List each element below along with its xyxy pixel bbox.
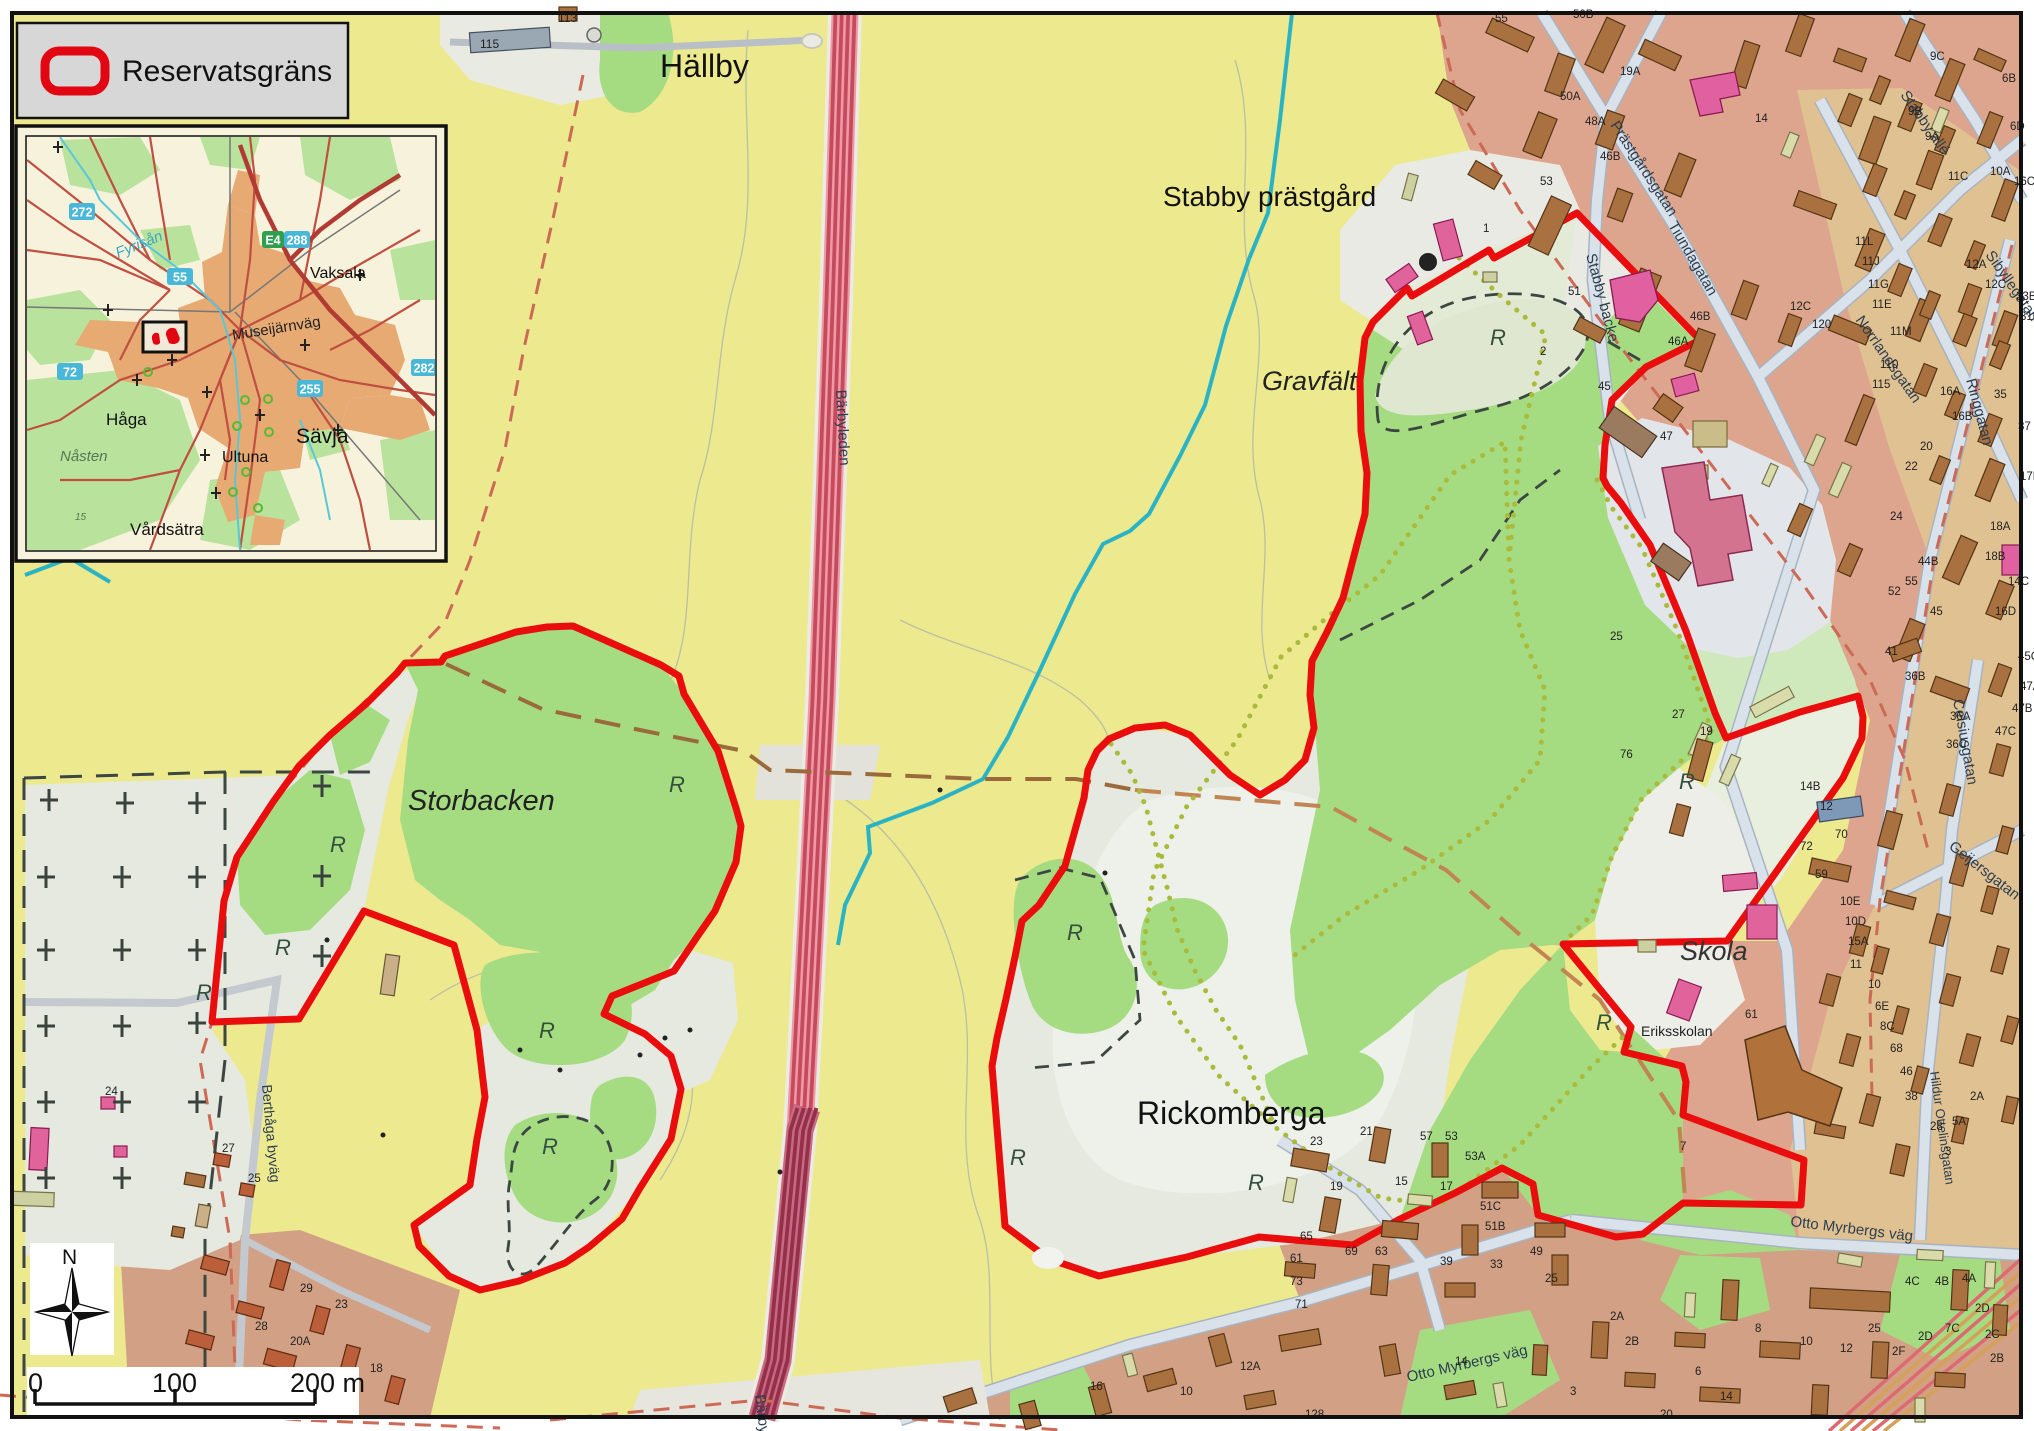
svg-text:65: 65: [1300, 1231, 1313, 1243]
svg-text:288: 288: [287, 234, 308, 248]
svg-text:110: 110: [1880, 359, 1898, 371]
svg-text:19: 19: [1700, 726, 1713, 738]
svg-text:115: 115: [480, 37, 499, 51]
svg-text:48A: 48A: [1585, 116, 1606, 128]
svg-text:55: 55: [173, 271, 187, 285]
svg-text:46: 46: [1900, 1066, 1913, 1078]
svg-text:Hällby: Hällby: [660, 48, 749, 84]
svg-text:47: 47: [1660, 431, 1673, 443]
svg-text:6: 6: [1695, 1366, 1701, 1378]
svg-text:27: 27: [1672, 709, 1685, 721]
svg-text:11E: 11E: [1872, 299, 1892, 311]
svg-text:14C: 14C: [2008, 576, 2029, 588]
svg-text:11C: 11C: [1948, 171, 1968, 183]
svg-text:R: R: [542, 1134, 558, 1159]
svg-text:11G: 11G: [1868, 279, 1889, 291]
svg-text:R: R: [196, 980, 212, 1005]
svg-text:5A: 5A: [1952, 1116, 1966, 1128]
svg-text:6B: 6B: [2002, 73, 2016, 85]
svg-text:53: 53: [1445, 1131, 1458, 1143]
svg-text:100: 100: [152, 1368, 197, 1398]
svg-text:Håga: Håga: [106, 410, 147, 429]
svg-text:57: 57: [1420, 1131, 1433, 1143]
svg-text:36C: 36C: [1946, 739, 1967, 751]
svg-text:11L: 11L: [1855, 236, 1874, 248]
svg-text:28: 28: [1930, 1121, 1943, 1133]
svg-text:68: 68: [1890, 1043, 1903, 1055]
svg-text:2D: 2D: [1975, 1303, 1990, 1315]
svg-text:71: 71: [1295, 1299, 1308, 1311]
svg-text:20: 20: [1920, 441, 1933, 453]
svg-text:20A: 20A: [290, 1336, 311, 1348]
svg-text:11M: 11M: [1890, 326, 1912, 338]
svg-text:11: 11: [1850, 959, 1862, 971]
svg-text:59: 59: [1815, 869, 1828, 881]
svg-text:9B: 9B: [1908, 106, 1922, 118]
svg-text:10: 10: [1180, 1386, 1193, 1398]
svg-text:16: 16: [1090, 1381, 1103, 1393]
svg-text:29: 29: [300, 1283, 313, 1295]
svg-text:25: 25: [1545, 1273, 1558, 1285]
svg-text:Rickomberga: Rickomberga: [1137, 1095, 1326, 1131]
svg-text:19A: 19A: [1620, 66, 1641, 78]
svg-text:45: 45: [1930, 606, 1943, 618]
svg-text:10E: 10E: [1840, 896, 1861, 908]
svg-text:10: 10: [1800, 1336, 1813, 1348]
svg-text:22: 22: [1905, 461, 1918, 473]
svg-text:11J: 11J: [1862, 256, 1880, 268]
svg-text:72: 72: [1800, 841, 1813, 853]
svg-text:12A: 12A: [1966, 259, 1987, 271]
svg-text:63: 63: [1375, 1246, 1388, 1258]
svg-text:R: R: [1067, 920, 1083, 945]
svg-text:14B: 14B: [1800, 781, 1821, 793]
svg-text:8: 8: [1755, 1323, 1761, 1335]
svg-text:50A: 50A: [1560, 91, 1581, 103]
svg-text:R: R: [1679, 769, 1695, 794]
svg-text:12C: 12C: [1790, 301, 1811, 313]
svg-text:35: 35: [1994, 389, 2007, 401]
svg-text:55: 55: [1905, 576, 1918, 588]
svg-text:E4: E4: [265, 234, 280, 248]
svg-text:Gravfält: Gravfält: [1262, 366, 1358, 396]
svg-text:76: 76: [1620, 749, 1633, 761]
svg-text:18: 18: [370, 1363, 383, 1375]
svg-text:12C: 12C: [1985, 279, 2006, 291]
svg-text:14: 14: [1755, 113, 1768, 125]
svg-text:R: R: [1490, 325, 1506, 350]
svg-text:200 m: 200 m: [290, 1368, 365, 1398]
svg-text:4A: 4A: [1962, 1273, 1976, 1285]
svg-text:33: 33: [1490, 1259, 1503, 1271]
svg-text:Reservatsgräns: Reservatsgräns: [122, 55, 332, 88]
svg-text:R: R: [1010, 1145, 1026, 1170]
svg-text:18A: 18A: [1990, 521, 2011, 533]
svg-text:51C: 51C: [1480, 1201, 1501, 1213]
svg-text:46A: 46A: [1668, 336, 1689, 348]
svg-text:36A: 36A: [1950, 711, 1971, 723]
svg-text:Stabby prästgård: Stabby prästgård: [1163, 181, 1376, 212]
svg-text:2B: 2B: [1990, 1353, 2004, 1365]
svg-text:0: 0: [28, 1368, 43, 1398]
svg-text:120: 120: [1812, 319, 1831, 331]
svg-text:19: 19: [1330, 1181, 1343, 1193]
svg-text:44B: 44B: [1918, 556, 1939, 568]
svg-text:24: 24: [1890, 511, 1903, 523]
svg-text:R: R: [275, 935, 291, 960]
svg-text:53A: 53A: [1465, 1151, 1486, 1163]
svg-text:15: 15: [1395, 1176, 1408, 1188]
svg-text:Storbacken: Storbacken: [408, 785, 555, 817]
svg-text:R: R: [1248, 1170, 1264, 1195]
svg-text:115: 115: [1872, 379, 1890, 391]
svg-text:25: 25: [1610, 631, 1623, 643]
svg-text:18B: 18B: [1985, 551, 2006, 563]
svg-text:24: 24: [105, 1086, 118, 1098]
svg-text:2A: 2A: [1610, 1311, 1624, 1323]
svg-text:39: 39: [1440, 1256, 1453, 1268]
svg-text:70: 70: [1835, 829, 1848, 841]
svg-text:51B: 51B: [1485, 1221, 1506, 1233]
svg-text:41: 41: [1885, 646, 1898, 658]
svg-text:9A: 9A: [1925, 131, 1939, 143]
svg-text:36B: 36B: [1905, 671, 1926, 683]
svg-text:2C: 2C: [1985, 1329, 2000, 1341]
svg-text:14: 14: [1720, 1391, 1733, 1403]
svg-text:12: 12: [1820, 801, 1833, 813]
svg-text:25: 25: [1868, 1323, 1881, 1335]
svg-text:23: 23: [335, 1299, 348, 1311]
svg-text:61: 61: [1290, 1253, 1303, 1265]
svg-text:49: 49: [1530, 1246, 1543, 1258]
svg-text:N: N: [62, 1246, 77, 1269]
svg-text:1: 1: [1483, 223, 1489, 235]
svg-text:61: 61: [1745, 1009, 1758, 1021]
svg-text:7: 7: [1680, 1141, 1686, 1153]
svg-text:2: 2: [1540, 346, 1546, 358]
svg-text:4B: 4B: [1935, 1276, 1949, 1288]
svg-text:R: R: [330, 832, 346, 857]
svg-text:2A: 2A: [1970, 1091, 1984, 1103]
svg-text:15: 15: [75, 512, 87, 523]
svg-text:Sävja: Sävja: [296, 425, 349, 448]
svg-text:Eriksskolan: Eriksskolan: [1641, 1023, 1713, 1039]
svg-text:282: 282: [414, 362, 435, 376]
svg-text:12: 12: [1840, 1343, 1853, 1355]
svg-text:28: 28: [255, 1321, 268, 1333]
svg-text:R: R: [669, 772, 685, 797]
svg-text:12A: 12A: [1240, 1361, 1261, 1373]
svg-text:Skola: Skola: [1680, 936, 1748, 966]
svg-text:15A: 15A: [1848, 936, 1869, 948]
svg-text:8C: 8C: [1880, 1021, 1895, 1033]
svg-text:9C: 9C: [1930, 51, 1945, 63]
svg-text:Ultuna: Ultuna: [222, 449, 268, 466]
svg-text:10: 10: [1868, 979, 1881, 991]
svg-text:14: 14: [1455, 1356, 1468, 1368]
svg-text:272: 272: [72, 206, 93, 220]
svg-text:16D: 16D: [1995, 606, 2016, 618]
svg-text:Vårdsätra: Vårdsätra: [130, 520, 204, 539]
svg-text:27: 27: [222, 1143, 235, 1155]
svg-text:23: 23: [1310, 1136, 1323, 1148]
svg-text:73: 73: [1290, 1276, 1303, 1288]
svg-text:7C: 7C: [1945, 1323, 1960, 1335]
svg-text:52: 52: [1888, 586, 1901, 598]
svg-text:2B: 2B: [1625, 1336, 1639, 1348]
svg-text:10D: 10D: [1845, 916, 1866, 928]
svg-text:4C: 4C: [1905, 1276, 1920, 1288]
svg-text:38: 38: [1905, 1091, 1918, 1103]
svg-text:16A: 16A: [1940, 386, 1961, 398]
svg-text:Vaksala: Vaksala: [310, 265, 366, 282]
svg-text:46B: 46B: [1690, 311, 1711, 323]
svg-text:46B: 46B: [1600, 151, 1621, 163]
svg-text:6E: 6E: [1875, 1001, 1889, 1013]
svg-text:21: 21: [1360, 1126, 1373, 1138]
svg-text:3: 3: [1570, 1386, 1576, 1398]
svg-text:16B: 16B: [1952, 411, 1973, 423]
svg-text:R: R: [539, 1018, 555, 1043]
svg-text:2F: 2F: [1892, 1346, 1905, 1358]
svg-text:69: 69: [1345, 1246, 1358, 1258]
svg-text:53: 53: [1540, 176, 1553, 188]
svg-text:17: 17: [1440, 1181, 1453, 1193]
svg-text:10A: 10A: [1990, 166, 2011, 178]
svg-text:47C: 47C: [1995, 726, 2016, 738]
svg-text:45: 45: [1598, 381, 1611, 393]
svg-text:2D: 2D: [1918, 1331, 1933, 1343]
svg-text:R: R: [1596, 1010, 1612, 1035]
svg-text:3: 3: [1945, 1146, 1951, 1158]
svg-text:Nåsten: Nåsten: [60, 448, 108, 465]
svg-text:255: 255: [300, 383, 321, 397]
svg-text:33B: 33B: [2016, 291, 2034, 303]
svg-text:25: 25: [248, 1173, 261, 1185]
svg-text:16C: 16C: [2014, 176, 2034, 188]
svg-text:72: 72: [63, 366, 77, 380]
svg-text:51: 51: [1568, 286, 1581, 298]
